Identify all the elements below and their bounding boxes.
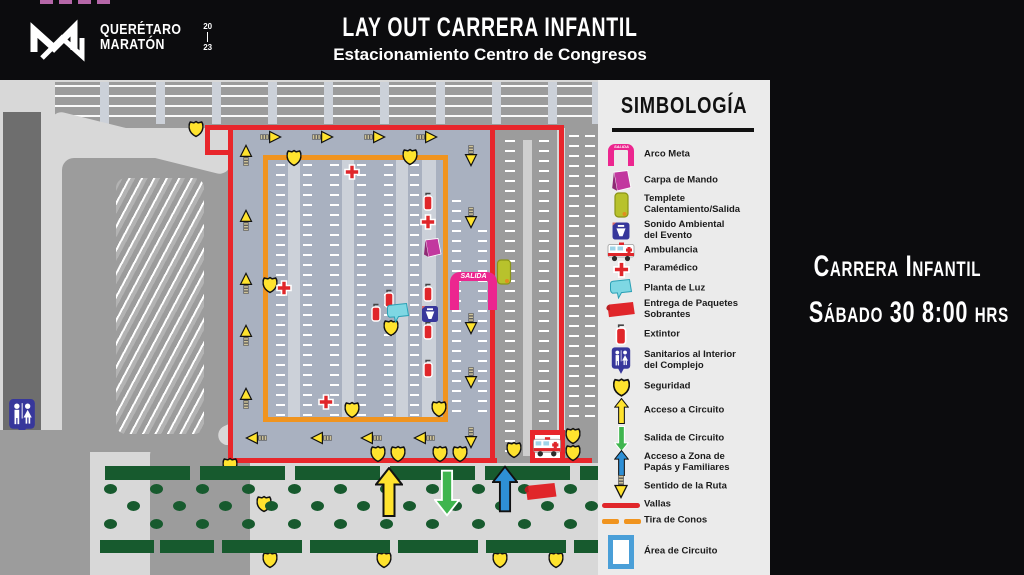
tree (196, 519, 209, 529)
planter-strip (574, 540, 598, 553)
legend-row: Extintor (598, 322, 770, 348)
parking-aisle (380, 82, 389, 124)
parking-strip-right (565, 125, 598, 463)
parking-ticks (478, 230, 487, 416)
carpa-de-mando-icon (422, 238, 442, 258)
tree (265, 501, 278, 511)
vallas-line-right (559, 125, 564, 430)
parking-aisle (156, 82, 165, 124)
acceso-zona-icon (602, 450, 640, 476)
paramedico-icon (420, 214, 436, 230)
security-shield-icon (345, 402, 360, 419)
security-shield-icon (549, 552, 564, 569)
legend-row: Templete Calentamiento/Salida (598, 192, 770, 218)
event-info-panel: Carrera Infantil Sábado 30 8:00 hrs (770, 0, 1024, 575)
planter-strip (295, 466, 380, 480)
parking-aisle (436, 82, 445, 124)
planter-strip (310, 540, 390, 553)
tree (150, 484, 163, 494)
tira-de-conos-icon (602, 508, 640, 534)
legend-row: Tira de Conos (598, 508, 770, 534)
legend-label: Salida de Circuito (644, 434, 724, 445)
parking-band-top (55, 82, 598, 128)
legend-title: SIMBOLOGÍA (598, 92, 770, 119)
logo-line-bottom: MARATÓN (100, 37, 181, 52)
legend-row: Carpa de Mando (598, 168, 770, 194)
parking-ticks (505, 140, 515, 456)
page-title: LAY OUT CARRERA INFANTIL (230, 12, 750, 43)
tree (334, 484, 347, 494)
parking-herringbone (116, 178, 204, 434)
templete-icon (602, 192, 640, 218)
planter-strip (100, 540, 154, 553)
parking-ticks (569, 135, 579, 425)
legend-label: Sentido de la Ruta (644, 482, 727, 493)
legend-label: Acceso a Circuito (644, 406, 724, 417)
legend-label: Seguridad (644, 382, 690, 393)
security-shield-icon (371, 446, 386, 463)
security-shield-icon (403, 149, 418, 166)
parking-aisle (212, 82, 221, 124)
security-shield-icon (566, 445, 581, 462)
security-shield-icon (507, 442, 522, 459)
legend-row: Área de Circuito (598, 532, 770, 572)
route-direction-icon (240, 324, 253, 346)
route-direction-icon (240, 209, 253, 231)
route-direction-icon (310, 432, 332, 445)
planta-de-luz-icon (386, 303, 410, 323)
header-bar: QUERÉTARO MARATÓN 20 23 LAY OUT CARRERA … (0, 0, 770, 80)
acceso-circuito-icon (375, 467, 403, 517)
tree (564, 519, 577, 529)
tree (242, 484, 255, 494)
route-direction-icon (312, 131, 334, 144)
event-name: Carrera Infantil (770, 250, 1024, 284)
security-shield-icon (189, 121, 204, 138)
paramedico-icon (318, 394, 334, 410)
security-shield-icon (432, 401, 447, 418)
extintor-icon (422, 284, 434, 303)
route-direction-icon (465, 145, 478, 167)
legend-label: Tira de Conos (644, 516, 707, 527)
extintor-icon (422, 360, 434, 379)
legend-label: Entrega de Paquetes Sobrantes (644, 299, 738, 321)
legend-row: Acceso a Circuito (598, 398, 770, 424)
route-direction-icon (465, 313, 478, 335)
tree (472, 484, 485, 494)
legend-label: Paramédico (644, 264, 698, 275)
parking-aisle (548, 82, 557, 124)
extintor-icon (602, 322, 640, 348)
parking-aisle (324, 82, 333, 124)
legend-label: Sanitarios al Interior del Complejo (644, 350, 736, 372)
parking-strip-mid (495, 125, 557, 463)
tree (334, 519, 347, 529)
legend-row: Sanitarios al Interior del Complejo (598, 348, 770, 374)
parking-aisle (100, 82, 109, 124)
salida-circuito-icon (602, 426, 640, 452)
route-direction-icon (240, 272, 253, 294)
paramedico-icon (344, 164, 360, 180)
entrega-paquetes-icon (602, 297, 640, 323)
planter-strip (486, 540, 566, 553)
route-direction-icon (260, 131, 282, 144)
header-titles: LAY OUT CARRERA INFANTIL Estacionamiento… (230, 12, 750, 65)
logo-wordmark: QUERÉTARO MARATÓN 20 23 (100, 22, 212, 53)
paramedico-icon (276, 280, 292, 296)
tree (311, 501, 324, 511)
event-datetime: Sábado 30 8:00 hrs (770, 296, 1024, 330)
tree (219, 501, 232, 511)
sonido-ambiental-icon (422, 306, 439, 323)
legend-row: Salida de Circuito (598, 426, 770, 452)
arco-meta-icon: SALIDA (602, 142, 640, 168)
page-subtitle: Estacionamiento Centro de Congresos (230, 45, 750, 65)
tree (380, 519, 393, 529)
area-circuito-icon (602, 532, 640, 572)
parking-aisle (492, 82, 501, 124)
legend-row: Seguridad (598, 374, 770, 400)
legend-label: Carpa de Mando (644, 176, 718, 187)
entrega-paquetes-icon (523, 481, 559, 503)
parking-aisle (268, 82, 277, 124)
decor-dash (78, 0, 91, 4)
logo-line-top: QUERÉTARO (100, 22, 181, 37)
poster: QUERÉTARO MARATÓN 20 23 LAY OUT CARRERA … (0, 0, 1024, 575)
security-shield-icon (287, 150, 302, 167)
planter-strip (580, 466, 598, 480)
tree (288, 519, 301, 529)
decor-dash (40, 0, 53, 4)
salida-arch-label: SALIDA (459, 273, 488, 280)
salida-circuito-icon (434, 468, 460, 518)
tree (173, 501, 186, 511)
route-direction-icon (245, 432, 267, 445)
security-shield-icon (377, 552, 392, 569)
legend-label: Arco Meta (644, 150, 690, 161)
logo-year-bottom: 23 (203, 43, 212, 52)
templete-icon (497, 259, 512, 285)
legend-row: Acceso a Zona de Papás y Familiares (598, 450, 770, 476)
route-direction-icon (240, 144, 253, 166)
tree (472, 519, 485, 529)
security-shield-icon (453, 446, 468, 463)
site-map: SALIDA (0, 80, 600, 575)
legend-row: Entrega de Paquetes Sobrantes (598, 297, 770, 323)
planter-strip (200, 466, 285, 480)
tree (357, 501, 370, 511)
legend-panel: SIMBOLOGÍA SALIDA Arco Meta Carpa de Man… (598, 80, 770, 575)
parking-ticks (585, 135, 595, 425)
legend-label: Planta de Luz (644, 284, 705, 295)
route-direction-icon (360, 432, 382, 445)
security-shield-icon (263, 552, 278, 569)
acceso-circuito-icon (602, 398, 640, 424)
sanitarios-icon (602, 348, 640, 374)
logo-year-top: 20 (203, 22, 212, 31)
tree (288, 484, 301, 494)
planter-strip (105, 466, 190, 480)
parking-aisle (523, 140, 532, 456)
ambulancia-icon (533, 435, 562, 458)
route-direction-icon (416, 131, 438, 144)
decor-dash (97, 0, 110, 4)
tree (585, 501, 598, 511)
legend-label: Extintor (644, 330, 680, 341)
route-direction-icon (413, 432, 435, 445)
legend-rule (612, 128, 754, 132)
security-shield-icon (566, 428, 581, 445)
salida-arch: SALIDA (450, 272, 497, 310)
security-shield-icon (433, 446, 448, 463)
extintor-icon (370, 304, 382, 323)
planter-strip (222, 540, 302, 553)
vallas-line-left (228, 125, 233, 463)
acceso-zona-icon (492, 464, 518, 514)
tree (403, 501, 416, 511)
parking-block (0, 430, 90, 575)
legend-label: Templete Calentamiento/Salida (644, 194, 740, 216)
decor-dash (59, 0, 72, 4)
legend-label: Acceso a Zona de Papás y Familiares (644, 452, 730, 474)
maraton-logo-icon (28, 18, 90, 64)
tree (150, 519, 163, 529)
legend-row: SALIDA Arco Meta (598, 142, 770, 168)
tree (127, 501, 140, 511)
legend-label: Área de Circuito (644, 547, 717, 558)
tree (104, 519, 117, 529)
security-shield-icon (391, 446, 406, 463)
planter-strip (398, 540, 478, 553)
tree (196, 484, 209, 494)
tree (426, 519, 439, 529)
extintor-icon (422, 322, 434, 341)
tree (104, 484, 117, 494)
tree (518, 519, 531, 529)
route-direction-icon (465, 207, 478, 229)
parking-ticks (539, 140, 549, 456)
route-direction-icon (364, 131, 386, 144)
seguridad-icon (602, 374, 640, 400)
route-direction-icon (465, 367, 478, 389)
planter-strip (160, 540, 214, 553)
tree (564, 484, 577, 494)
carpa-de-mando-icon (602, 168, 640, 194)
route-direction-icon (240, 387, 253, 409)
logo-year-divider (207, 32, 208, 42)
tree (242, 519, 255, 529)
legend-label: Ambulancia (644, 246, 698, 257)
vallas-line-top (205, 125, 564, 130)
security-shield-icon (493, 552, 508, 569)
extintor-icon (422, 193, 434, 212)
